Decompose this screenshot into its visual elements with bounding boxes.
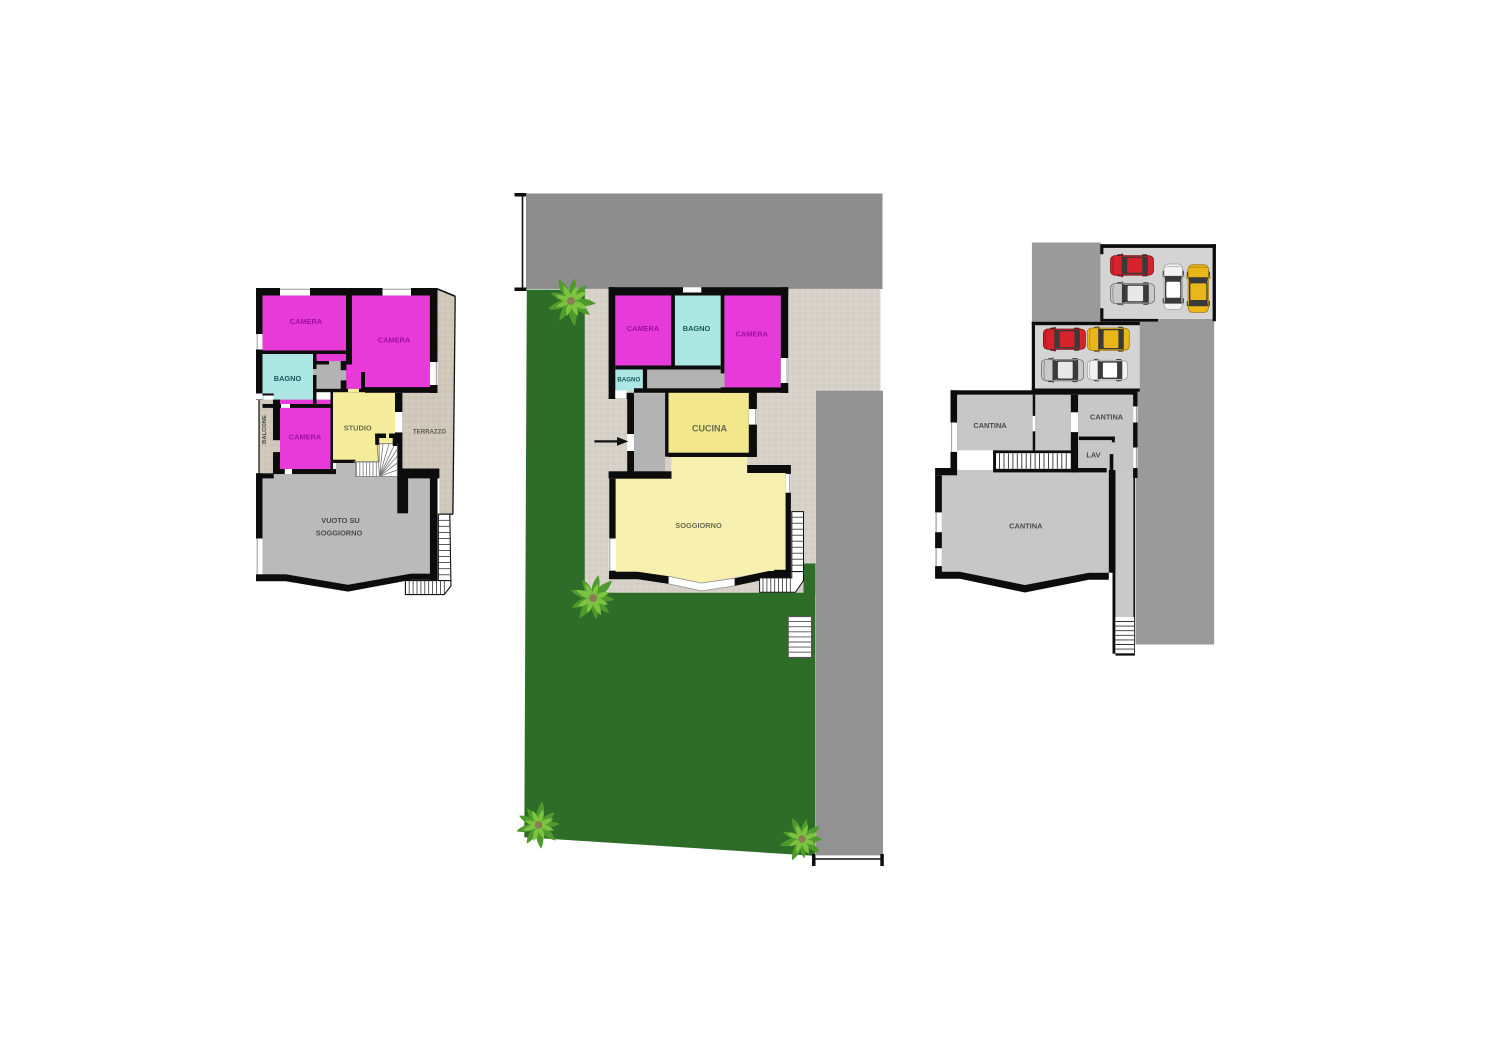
svg-text:SOGGIORNO: SOGGIORNO bbox=[675, 521, 722, 530]
svg-text:BALCONE: BALCONE bbox=[262, 415, 268, 444]
svg-text:CANTINA: CANTINA bbox=[1090, 413, 1124, 422]
svg-text:CAMERA: CAMERA bbox=[289, 433, 322, 442]
svg-text:CAMERA: CAMERA bbox=[736, 330, 769, 339]
svg-text:TERRAZZO: TERRAZZO bbox=[413, 429, 446, 436]
svg-text:BAGNO: BAGNO bbox=[274, 374, 302, 383]
svg-text:CANTINA: CANTINA bbox=[1009, 522, 1043, 531]
svg-text:SOGGIORNO: SOGGIORNO bbox=[316, 529, 363, 538]
svg-text:BAGNO: BAGNO bbox=[683, 324, 711, 333]
svg-text:BAGNO: BAGNO bbox=[617, 377, 640, 384]
svg-text:CUCINA: CUCINA bbox=[692, 424, 727, 434]
svg-text:CANTINA: CANTINA bbox=[973, 421, 1007, 430]
svg-text:VUOTO SU: VUOTO SU bbox=[321, 516, 359, 525]
svg-text:CAMERA: CAMERA bbox=[290, 317, 323, 326]
svg-text:CAMERA: CAMERA bbox=[627, 324, 660, 333]
svg-text:CAMERA: CAMERA bbox=[378, 336, 411, 345]
svg-text:STUDIO: STUDIO bbox=[344, 424, 372, 433]
svg-text:LAV: LAV bbox=[1086, 451, 1100, 460]
